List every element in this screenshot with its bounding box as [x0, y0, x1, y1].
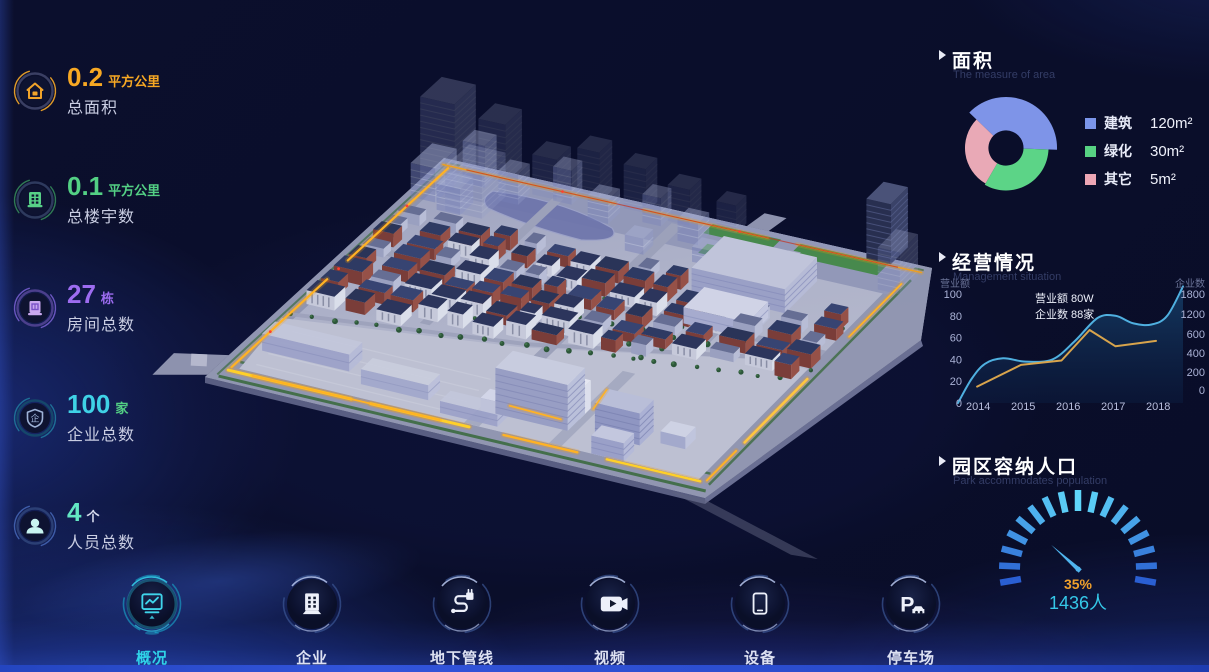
svg-text:1436人: 1436人 [1049, 593, 1107, 613]
svg-text:35%: 35% [1064, 576, 1093, 592]
svg-text:P: P [900, 593, 914, 616]
